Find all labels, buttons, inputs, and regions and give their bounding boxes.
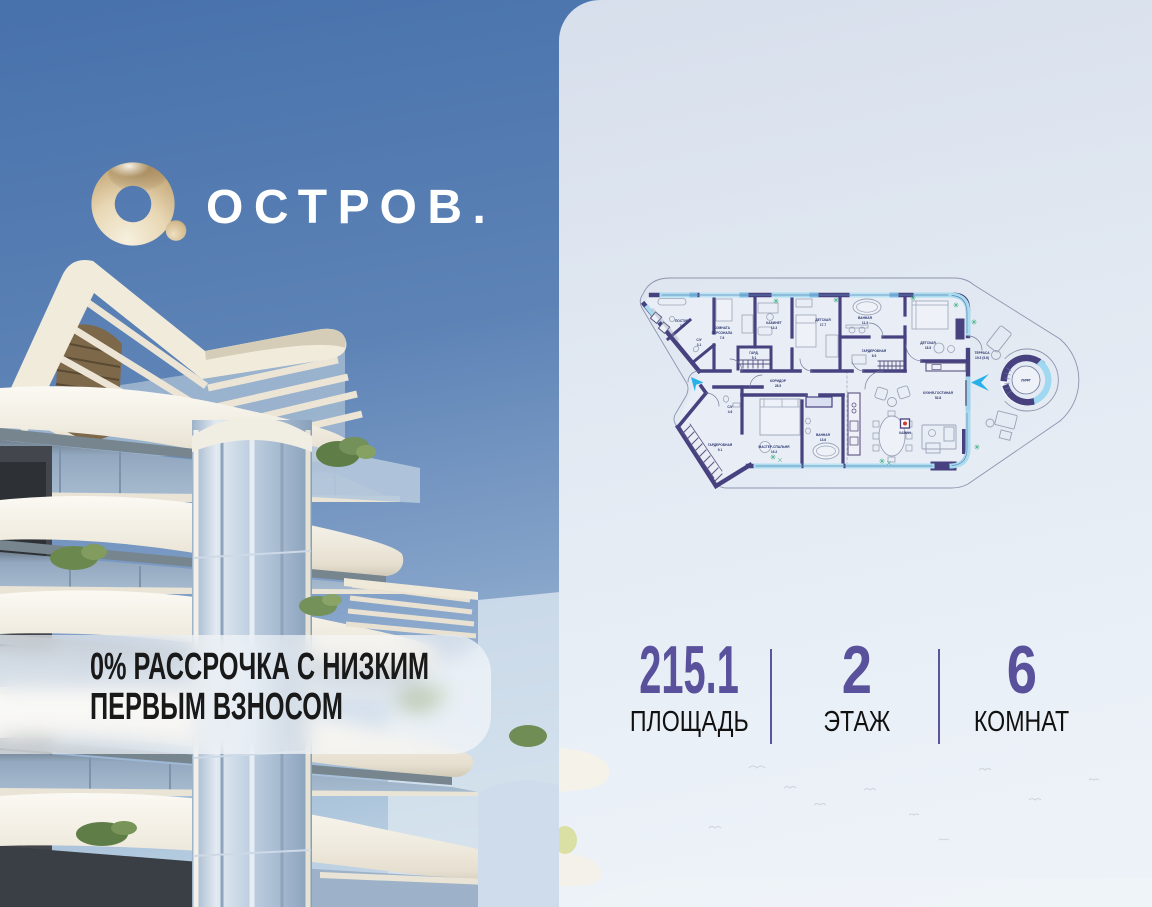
svg-text:ВАННАЯ: ВАННАЯ bbox=[858, 316, 873, 320]
svg-text:28.5: 28.5 bbox=[775, 384, 782, 388]
svg-text:7.0: 7.0 bbox=[680, 324, 685, 328]
svg-text:ПЕРСОНАЛА: ПЕРСОНАЛА bbox=[712, 331, 733, 335]
svg-text:5.1: 5.1 bbox=[752, 356, 757, 360]
svg-text:7.6: 7.6 bbox=[720, 336, 725, 340]
svg-text:КАМИН: КАМИН bbox=[899, 431, 911, 435]
svg-text:11.3: 11.3 bbox=[862, 321, 868, 325]
svg-text:19.3 (5.8): 19.3 (5.8) bbox=[975, 356, 989, 360]
svg-text:ДЕТСКАЯ: ДЕТСКАЯ bbox=[815, 318, 831, 322]
svg-text:13.6: 13.6 bbox=[820, 438, 827, 442]
svg-text:КУХНЯ-ГОСТИНАЯ: КУХНЯ-ГОСТИНАЯ bbox=[923, 391, 954, 395]
svg-text:18.5: 18.5 bbox=[925, 346, 932, 350]
svg-text:ТЕРРАСА: ТЕРРАСА bbox=[974, 351, 990, 355]
svg-text:МАСТЕР-СПАЛЬНЯ: МАСТЕР-СПАЛЬНЯ bbox=[758, 445, 790, 449]
svg-text:9.1: 9.1 bbox=[718, 448, 723, 452]
svg-text:КОРИДОР: КОРИДОР bbox=[770, 379, 787, 383]
svg-text:8.9: 8.9 bbox=[872, 354, 877, 358]
svg-text:ПОСТИР.: ПОСТИР. bbox=[675, 319, 689, 323]
svg-text:ГАРД.: ГАРД. bbox=[749, 351, 758, 355]
svg-text:52.8: 52.8 bbox=[935, 396, 942, 400]
svg-text:ГАРДЕРОБНАЯ: ГАРДЕРОБНАЯ bbox=[862, 349, 887, 353]
svg-text:19.2: 19.2 bbox=[771, 450, 778, 454]
svg-text:4.6: 4.6 bbox=[728, 410, 733, 414]
svg-text:ДЕТСКАЯ: ДЕТСКАЯ bbox=[920, 341, 936, 345]
svg-text:13.3: 13.3 bbox=[771, 326, 778, 330]
svg-text:ЛИФТ: ЛИФТ bbox=[1021, 379, 1032, 383]
svg-text:КАБИНЕТ: КАБИНЕТ bbox=[766, 321, 782, 325]
svg-text:3.1: 3.1 bbox=[697, 343, 702, 347]
svg-text:КОМНАТА: КОМНАТА bbox=[714, 326, 731, 330]
svg-text:17.7: 17.7 bbox=[820, 323, 827, 327]
svg-text:ГАРДЕРОБНАЯ: ГАРДЕРОБНАЯ bbox=[708, 443, 733, 447]
svg-text:ВАННАЯ: ВАННАЯ bbox=[816, 433, 831, 437]
